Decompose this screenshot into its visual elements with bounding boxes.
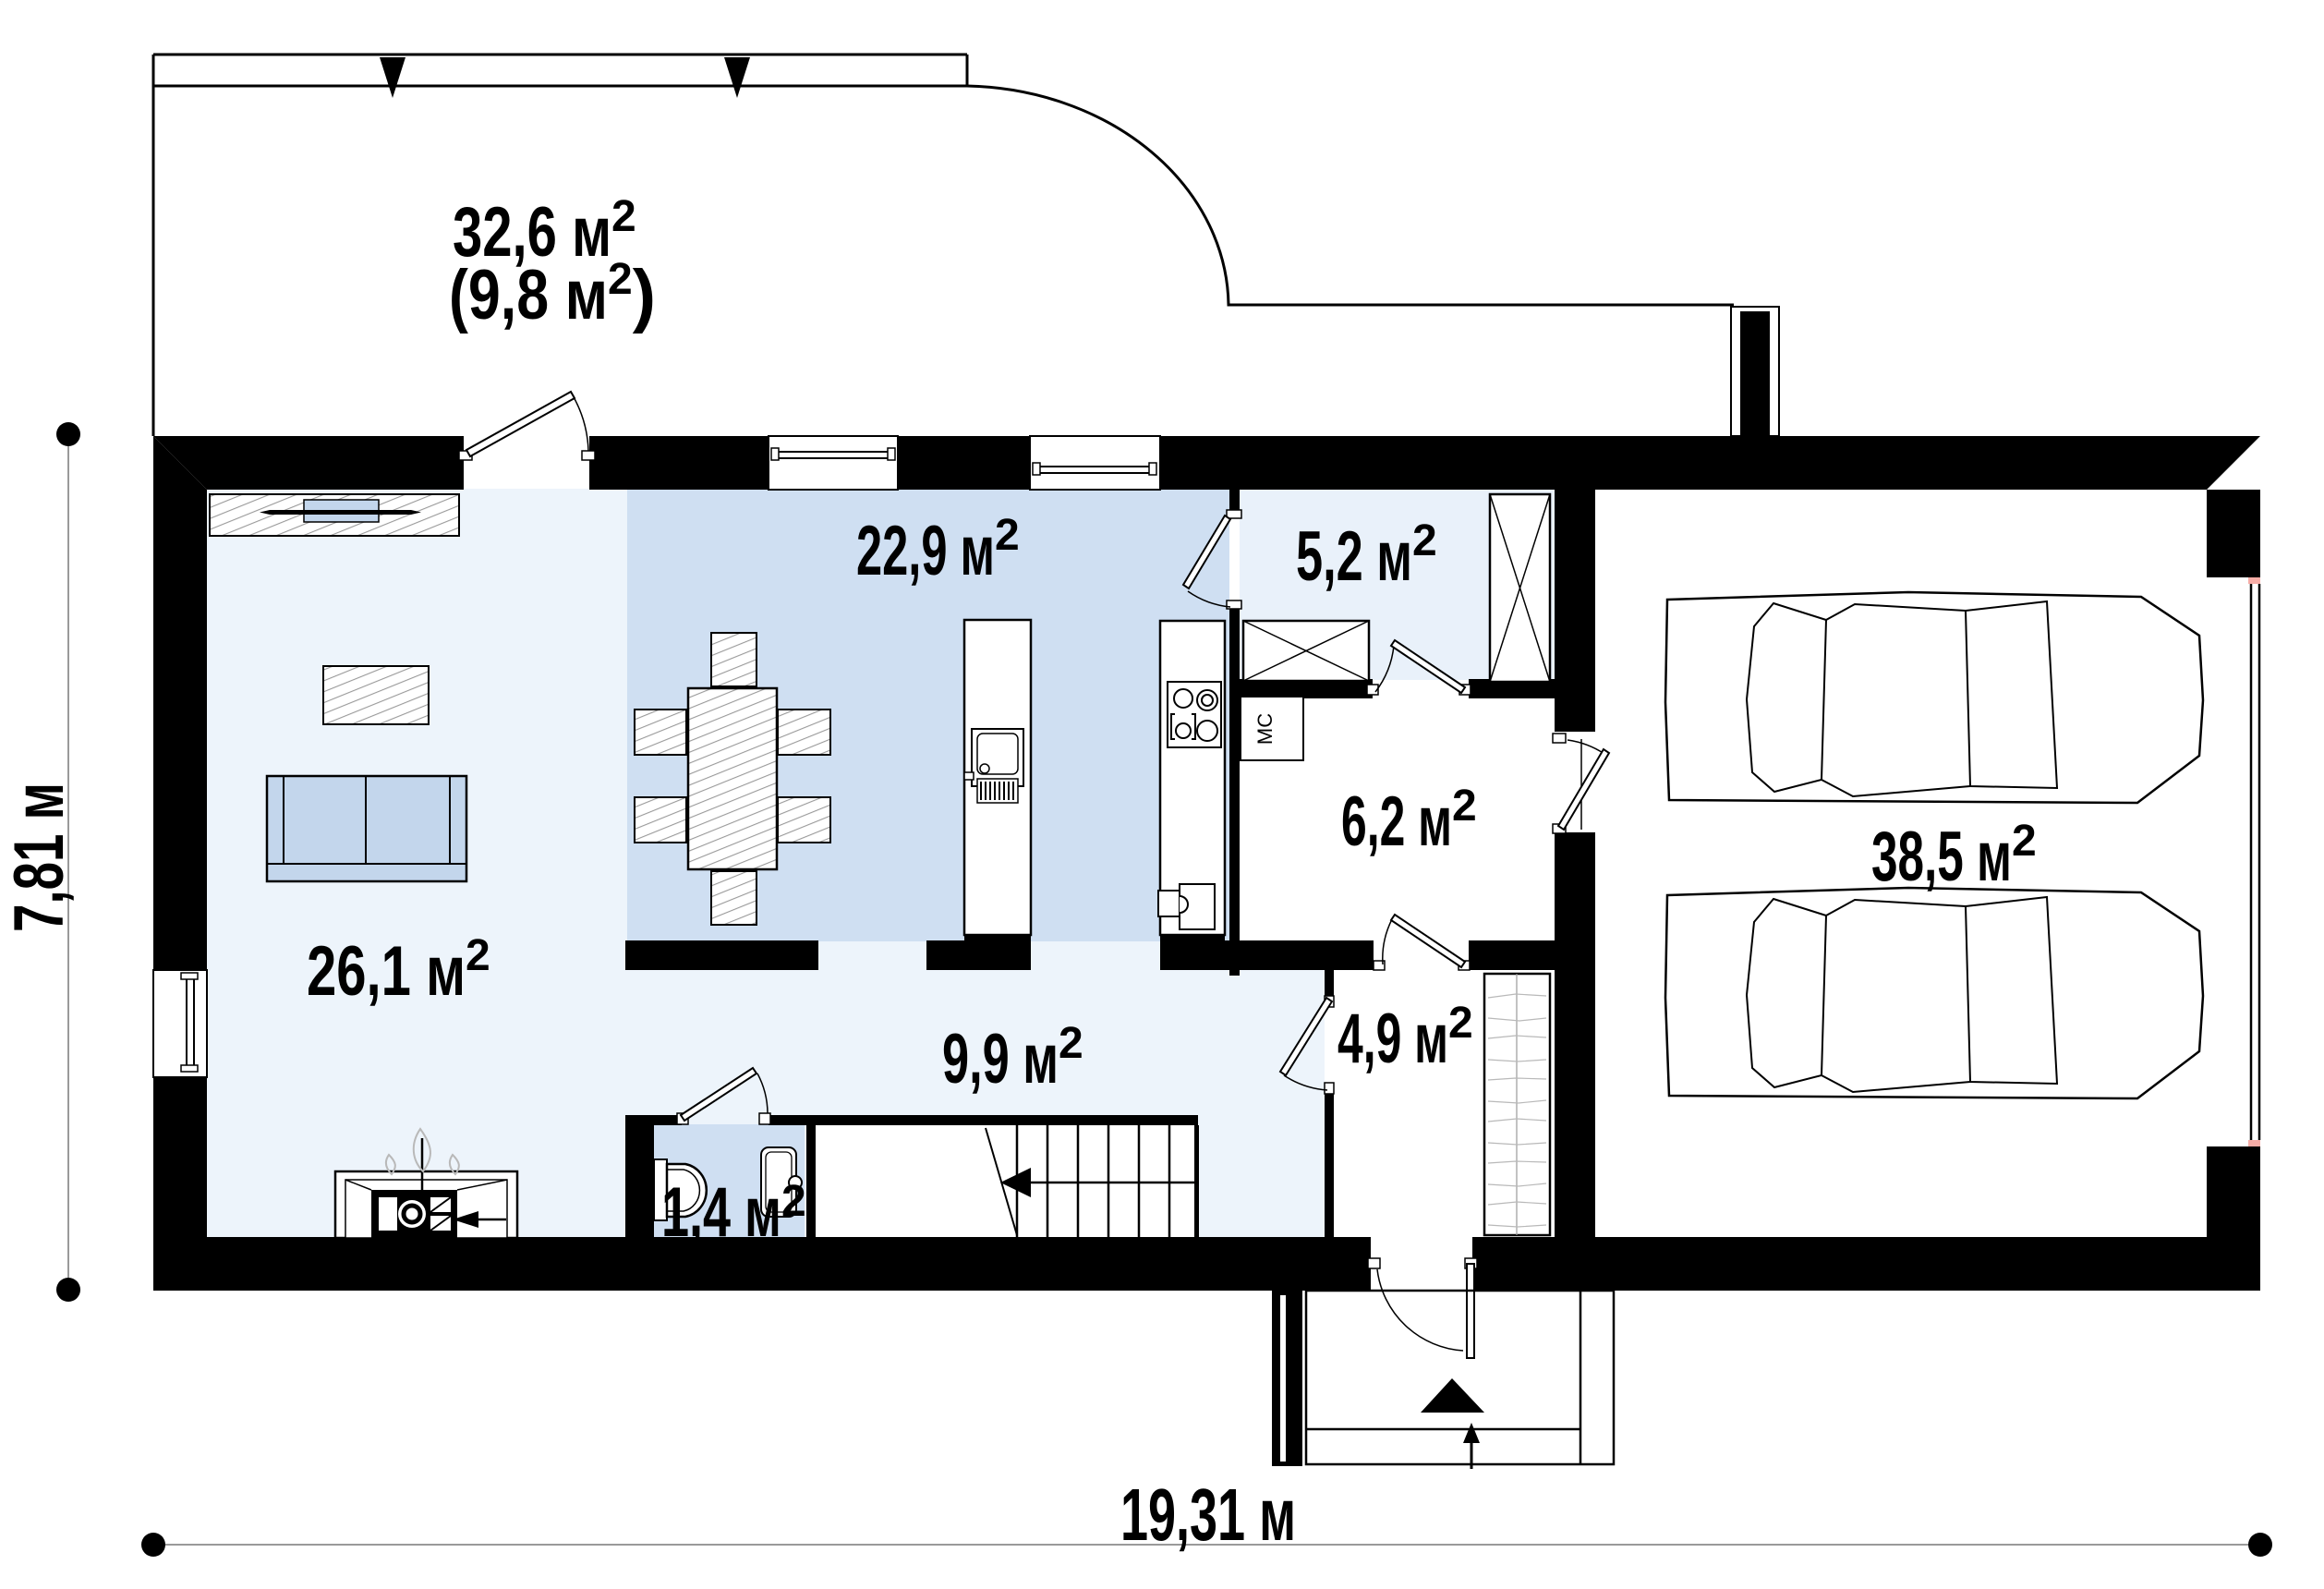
svg-text:7,81 м: 7,81 м	[0, 782, 79, 932]
svg-text:38,5 м2: 38,5 м2	[1871, 817, 2037, 896]
svg-text:19,31 м: 19,31 м	[1120, 1474, 1296, 1556]
svg-text:26,1 м2: 26,1 м2	[307, 931, 490, 1011]
svg-text:МС: МС	[1253, 713, 1277, 745]
